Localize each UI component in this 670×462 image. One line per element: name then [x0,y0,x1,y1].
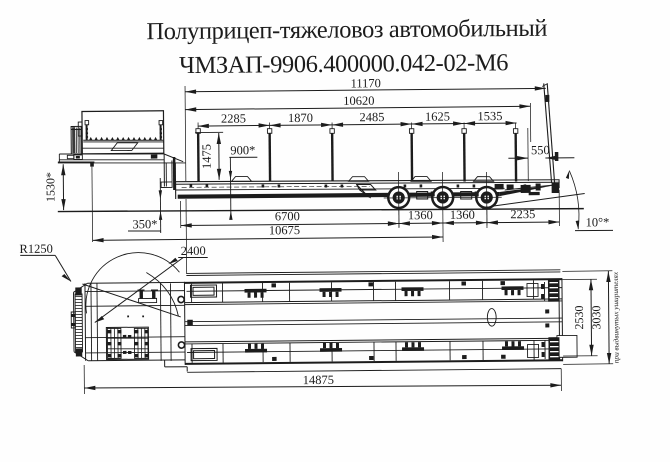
svg-text:6700: 6700 [275,209,300,223]
svg-text:350*: 350* [132,217,157,231]
svg-text:1475: 1475 [200,144,214,169]
svg-text:2285: 2285 [221,111,246,125]
svg-text:10620: 10620 [343,94,374,108]
svg-text:10°*: 10°* [585,215,609,229]
svg-text:10675: 10675 [269,223,300,237]
svg-text:R1250: R1250 [19,242,52,256]
svg-text:1360: 1360 [450,208,475,222]
svg-text:900*: 900* [230,143,255,157]
svg-text:при выдвинутых уширителях: при выдвинутых уширителях [611,271,621,363]
svg-text:11170: 11170 [350,76,380,90]
svg-text:14875: 14875 [303,373,334,387]
svg-text:1530*: 1530* [43,172,57,202]
svg-text:2530: 2530 [572,306,586,330]
svg-text:1625: 1625 [425,109,450,123]
svg-text:550: 550 [531,143,550,157]
svg-text:1360: 1360 [408,208,433,222]
svg-text:Полуприцеп-тяжеловоз автомобил: Полуприцеп-тяжеловоз автомобильный [146,15,547,45]
svg-text:2235: 2235 [510,207,535,221]
svg-text:3030: 3030 [589,305,603,329]
svg-text:ЧМЗАП-9906.400000.042-02-М6: ЧМЗАП-9906.400000.042-02-М6 [179,49,508,79]
svg-text:1535: 1535 [477,109,502,123]
svg-text:1870: 1870 [288,111,313,125]
svg-text:2400: 2400 [181,244,206,258]
svg-text:2485: 2485 [359,110,384,124]
